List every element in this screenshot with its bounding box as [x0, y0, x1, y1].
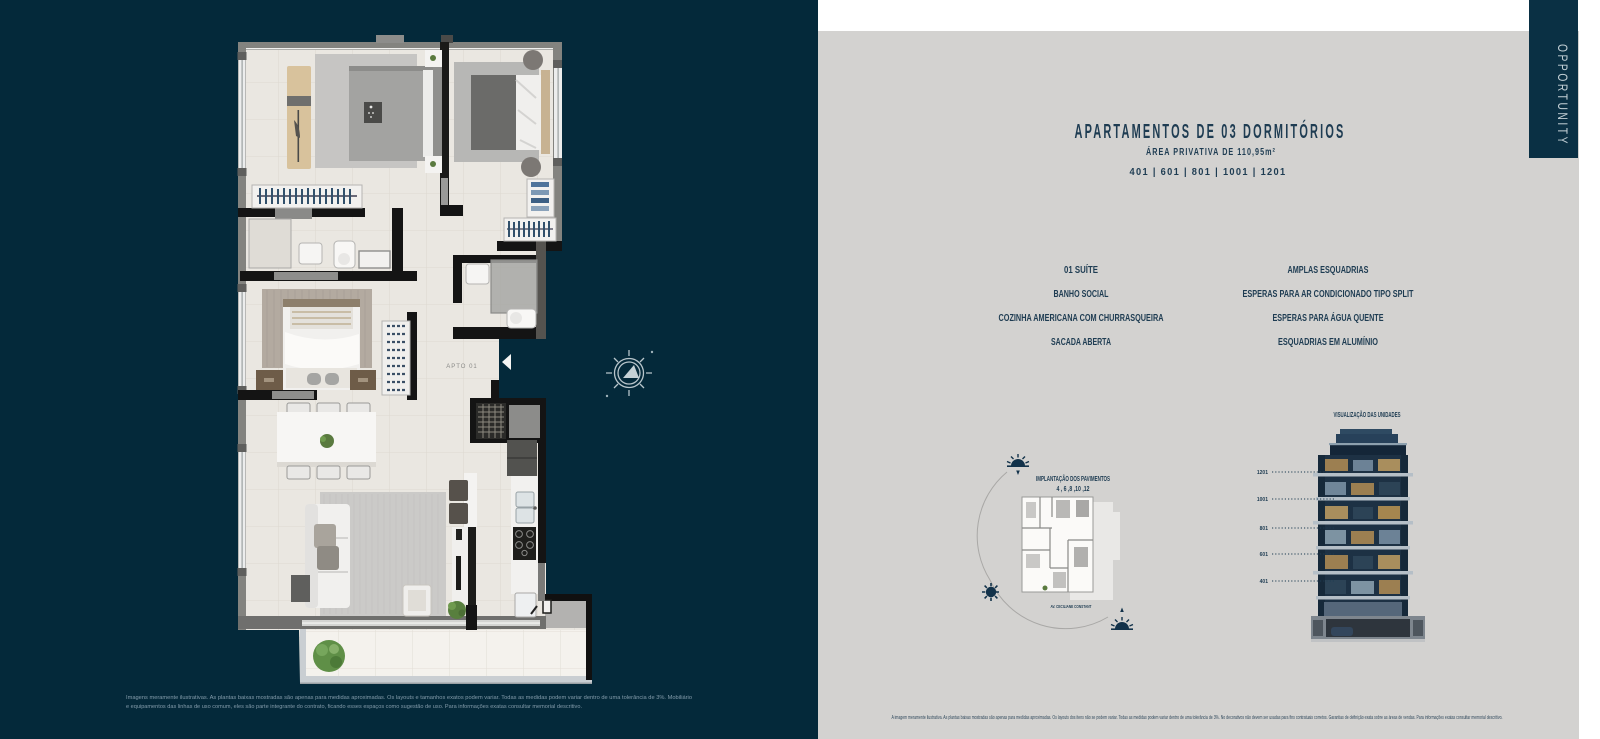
- svg-text:AV. CECILIANE CONSTANT: AV. CECILIANE CONSTANT: [1051, 604, 1092, 610]
- svg-text:ESQUADRIAS EM ALUMÍNIO: ESQUADRIAS EM ALUMÍNIO: [1278, 335, 1378, 348]
- svg-text:IMPLANTAÇÃO DOS PAVIMENTOS: IMPLANTAÇÃO DOS PAVIMENTOS: [1036, 474, 1110, 483]
- svg-text:ESPERAS PARA ÁGUA QUENTE: ESPERAS PARA ÁGUA QUENTE: [1273, 311, 1384, 324]
- svg-text:401: 401: [1260, 579, 1269, 585]
- svg-text:801: 801: [1260, 526, 1269, 532]
- svg-text:AMPLAS ESQUADRIAS: AMPLAS ESQUADRIAS: [1288, 265, 1369, 276]
- svg-text:OPPORTUNITY: OPPORTUNITY: [1555, 44, 1571, 146]
- svg-text:1001: 1001: [1257, 497, 1268, 503]
- svg-text:401 | 601 | 801 | 1001: 401 | 601 | 801 | 1001 | 1201: [1130, 166, 1287, 178]
- svg-text:e equipamentos das linhas de u: e equipamentos das linhas de uso comum, …: [126, 704, 582, 710]
- svg-text:SACADA ABERTA: SACADA ABERTA: [1051, 337, 1111, 348]
- svg-text:BANHO SOCIAL: BANHO SOCIAL: [1054, 289, 1109, 300]
- svg-text:01 SUÍTE: 01 SUÍTE: [1064, 263, 1098, 276]
- svg-text:1201: 1201: [1257, 470, 1268, 476]
- svg-text:ESPERAS PARA AR CONDICIONADO T: ESPERAS PARA AR CONDICIONADO TIPO SPLIT: [1243, 289, 1414, 300]
- svg-text:Imagens meramente ilustrativas: Imagens meramente ilustrativas. As plant…: [126, 695, 692, 701]
- svg-text:APTO 01: APTO 01: [446, 364, 478, 370]
- svg-text:VISUALIZAÇÃO DAS UNIDADES: VISUALIZAÇÃO DAS UNIDADES: [1334, 410, 1401, 419]
- svg-text:COZINHA AMERICANA COM CHURRASQ: COZINHA AMERICANA COM CHURRASQUEIRA: [999, 313, 1164, 324]
- svg-text:A imagem meramente ilustrativa: A imagem meramente ilustrativa. As plant…: [892, 715, 1503, 721]
- svg-text:APARTAMENTOS DE 03 DORMITÓRIOS: APARTAMENTOS DE 03 DORMITÓRIOS: [1075, 119, 1346, 143]
- svg-text:601: 601: [1260, 552, 1269, 558]
- svg-text:4 , 6 ,8 ,10 ,12: 4 , 6 ,8 ,10 ,12: [1057, 486, 1090, 493]
- svg-text:ÁREA PRIVATIVA DE 110,95m²: ÁREA PRIVATIVA DE 110,95m²: [1146, 145, 1276, 158]
